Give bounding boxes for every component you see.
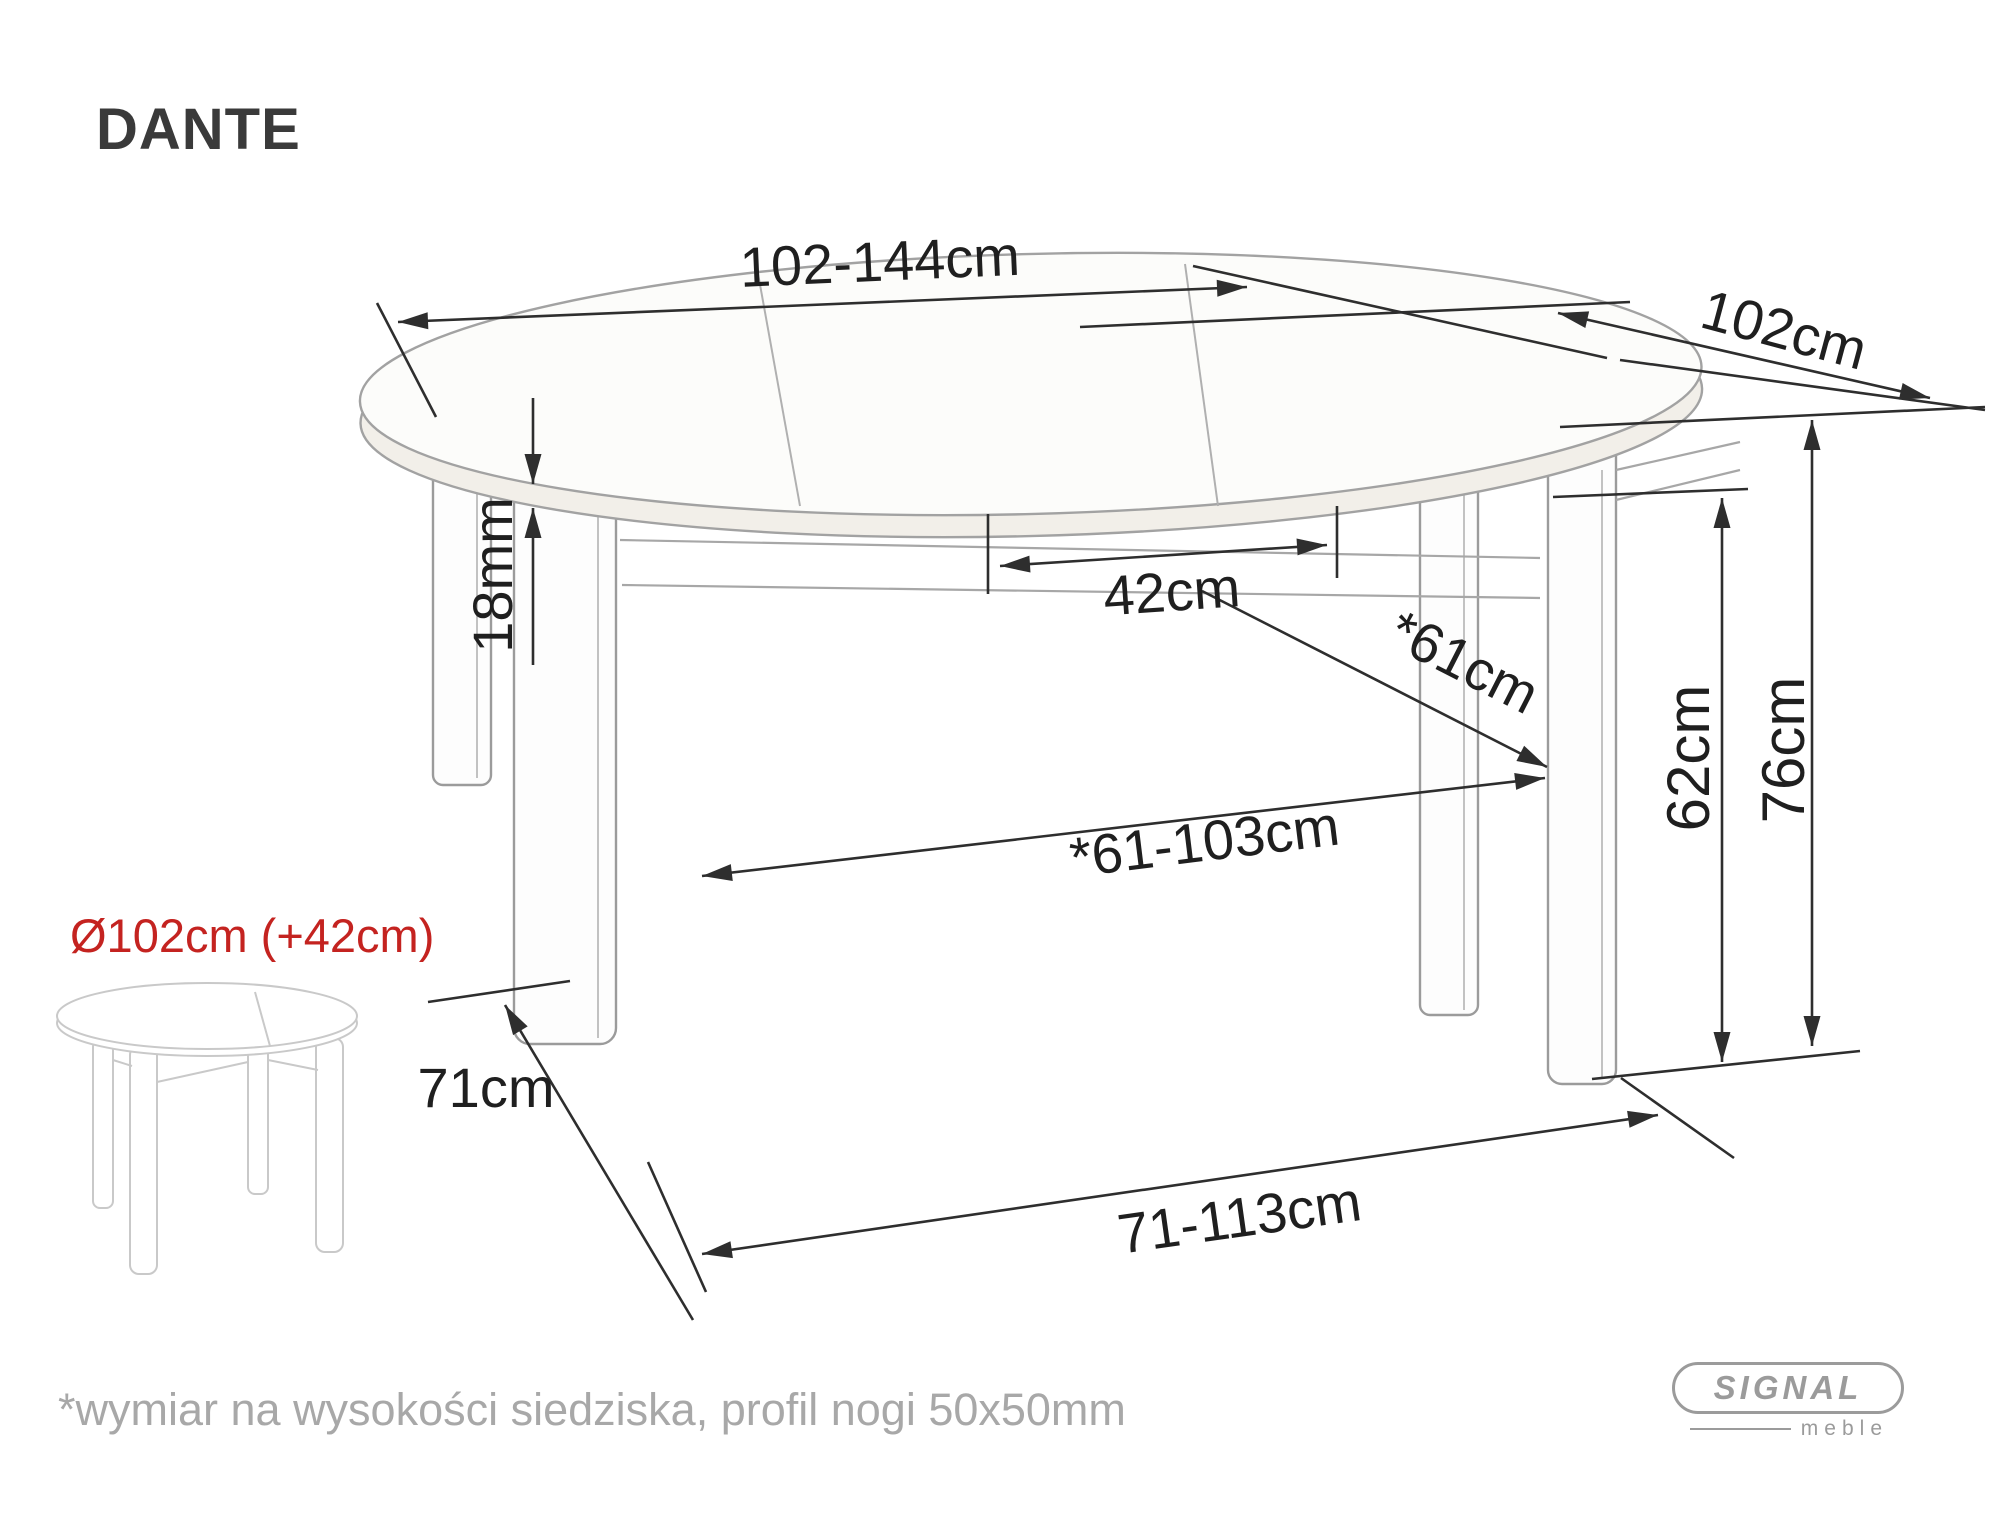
label-floor-width: 71-113cm	[1114, 1169, 1365, 1265]
label-height: 76cm	[1750, 677, 1817, 824]
dimension-arrowhead	[398, 312, 428, 329]
footnote-text: *wymiar na wysokości siedziska, profil n…	[58, 1384, 1126, 1436]
logo-sub-row: meble	[1672, 1417, 1904, 1441]
label-top-length: 102-144cm	[738, 224, 1021, 299]
label-leaf: 42cm	[1101, 555, 1242, 627]
dimension-arrowhead	[1804, 420, 1821, 450]
logo-pill: SIGNAL	[1672, 1362, 1904, 1414]
brand-logo: SIGNAL meble	[1672, 1362, 1904, 1441]
dimension-sheet: 102-144cm 102cm 18mm 42cm *61cm *61-103c…	[0, 0, 2000, 1530]
dimension-arrowhead	[1627, 1111, 1658, 1128]
dimension-arrowhead	[1514, 773, 1545, 790]
side-apron-bottom	[1616, 470, 1740, 500]
small-table-leg-front-left	[130, 1046, 157, 1274]
front-apron-bottom	[622, 585, 1540, 598]
table-leg-back-right	[1420, 430, 1478, 1015]
dimension-arrowhead	[702, 864, 733, 881]
label-seat-width: *61-103cm	[1066, 794, 1342, 890]
label-clearance: 62cm	[1655, 685, 1722, 832]
small-table-apron	[268, 1060, 318, 1070]
dim-line-floor-depth	[505, 1005, 693, 1320]
small-table-leg-back-left	[93, 1040, 113, 1208]
label-floor-depth: 71cm	[418, 1056, 555, 1119]
logo-brand-text: SIGNAL	[1714, 1369, 1863, 1407]
label-thickness: 18mm	[461, 497, 524, 653]
small-table-drawing	[57, 983, 357, 1274]
dimension-arrowhead	[1714, 498, 1731, 528]
dimension-arrowhead	[702, 1241, 733, 1258]
dimension-arrowhead	[1804, 1016, 1821, 1046]
dimension-arrowhead	[1714, 1032, 1731, 1062]
small-table-leg-front-right	[316, 1038, 343, 1252]
table-leg-front-right	[1548, 430, 1616, 1084]
table-dimension-drawing: 102-144cm 102cm 18mm 42cm *61cm *61-103c…	[0, 0, 2000, 1530]
dimension-arrowhead	[1516, 746, 1547, 767]
ground-line-right	[1592, 1051, 1860, 1079]
front-apron-top	[620, 540, 1540, 558]
dimension-arrowhead	[1000, 556, 1030, 573]
logo-sub-text: meble	[1801, 1417, 1888, 1441]
variant-diameter-label: Ø102cm (+42cm)	[70, 908, 434, 963]
dimension-arrowhead	[1899, 383, 1930, 400]
small-table-apron	[157, 1062, 248, 1082]
small-table-leg-back-right	[248, 1042, 268, 1194]
extension-line	[648, 1162, 706, 1292]
small-table-top	[57, 983, 357, 1049]
logo-sub-line	[1690, 1428, 1791, 1430]
product-title: DANTE	[96, 96, 301, 163]
